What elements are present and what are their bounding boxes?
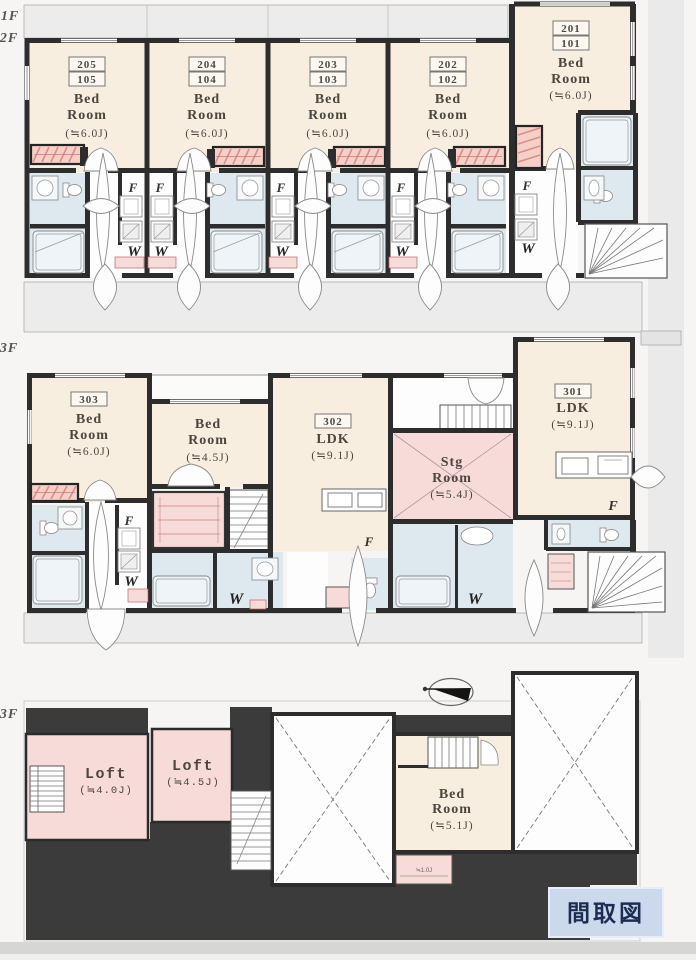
svg-text:F: F — [396, 180, 406, 195]
svg-text:(≒6.0J): (≒6.0J) — [65, 128, 108, 140]
svg-text:202: 202 — [438, 59, 458, 71]
svg-text:Room: Room — [428, 108, 468, 123]
svg-text:F: F — [128, 180, 138, 195]
svg-text:Loft: Loft — [172, 758, 214, 775]
svg-text:Loft: Loft — [85, 766, 127, 783]
svg-text:(≒4.5J): (≒4.5J) — [166, 777, 220, 789]
svg-text:F: F — [364, 534, 374, 549]
svg-text:2F: 2F — [0, 31, 18, 46]
svg-text:F: F — [607, 499, 618, 514]
svg-text:(≒6.0J): (≒6.0J) — [67, 446, 110, 458]
svg-text:1F: 1F — [1, 9, 19, 24]
svg-text:Room: Room — [188, 433, 228, 448]
svg-text:F: F — [276, 180, 286, 195]
svg-text:≒1.0J: ≒1.0J — [416, 868, 432, 874]
svg-text:W: W — [229, 591, 245, 608]
svg-text:Room: Room — [67, 108, 107, 123]
svg-text:(≒4.0J): (≒4.0J) — [79, 785, 133, 797]
svg-text:Bed: Bed — [195, 417, 221, 432]
svg-text:F: F — [522, 178, 532, 193]
svg-text:間取図: 間取図 — [567, 900, 645, 926]
svg-text:(≒6.0J): (≒6.0J) — [306, 128, 349, 140]
svg-text:Stg: Stg — [441, 455, 463, 470]
svg-text:W: W — [521, 241, 536, 257]
svg-text:Bed: Bed — [74, 92, 100, 107]
svg-text:301: 301 — [563, 386, 583, 398]
svg-text:201: 201 — [561, 23, 581, 35]
svg-text:105: 105 — [77, 74, 97, 86]
svg-text:Room: Room — [187, 108, 227, 123]
svg-text:103: 103 — [318, 74, 338, 86]
svg-text:W: W — [124, 574, 139, 590]
svg-text:F: F — [155, 180, 165, 195]
svg-text:Bed: Bed — [76, 412, 102, 427]
svg-text:3F: 3F — [0, 341, 18, 356]
svg-text:Bed: Bed — [435, 92, 461, 107]
svg-text:303: 303 — [79, 394, 99, 406]
svg-text:204: 204 — [197, 59, 217, 71]
svg-text:W: W — [468, 591, 484, 608]
svg-text:(≒5.4J): (≒5.4J) — [430, 489, 473, 501]
svg-text:101: 101 — [561, 38, 581, 50]
svg-text:(≒9.1J): (≒9.1J) — [311, 450, 354, 462]
svg-text:LDK: LDK — [316, 432, 349, 447]
svg-text:102: 102 — [438, 74, 458, 86]
svg-text:(≒5.1J): (≒5.1J) — [430, 820, 473, 832]
svg-text:Room: Room — [432, 471, 472, 486]
svg-text:203: 203 — [318, 59, 338, 71]
svg-text:(≒4.5J): (≒4.5J) — [186, 452, 229, 464]
svg-text:Bed: Bed — [315, 92, 341, 107]
svg-text:(≒6.0J): (≒6.0J) — [549, 90, 592, 102]
svg-text:Bed: Bed — [558, 56, 584, 71]
svg-text:F: F — [124, 513, 134, 528]
svg-text:(≒9.1J): (≒9.1J) — [551, 419, 594, 431]
svg-text:Room: Room — [432, 802, 472, 817]
svg-text:LDK: LDK — [556, 401, 589, 416]
svg-text:3F: 3F — [0, 707, 18, 722]
svg-text:205: 205 — [77, 59, 97, 71]
svg-text:Room: Room — [551, 72, 591, 87]
svg-text:Bed: Bed — [439, 787, 465, 802]
svg-text:104: 104 — [197, 74, 217, 86]
svg-text:Bed: Bed — [194, 92, 220, 107]
svg-text:302: 302 — [323, 416, 343, 428]
svg-text:Room: Room — [308, 108, 348, 123]
svg-text:Room: Room — [69, 428, 109, 443]
svg-text:(≒6.0J): (≒6.0J) — [426, 128, 469, 140]
svg-text:(≒6.0J): (≒6.0J) — [185, 128, 228, 140]
